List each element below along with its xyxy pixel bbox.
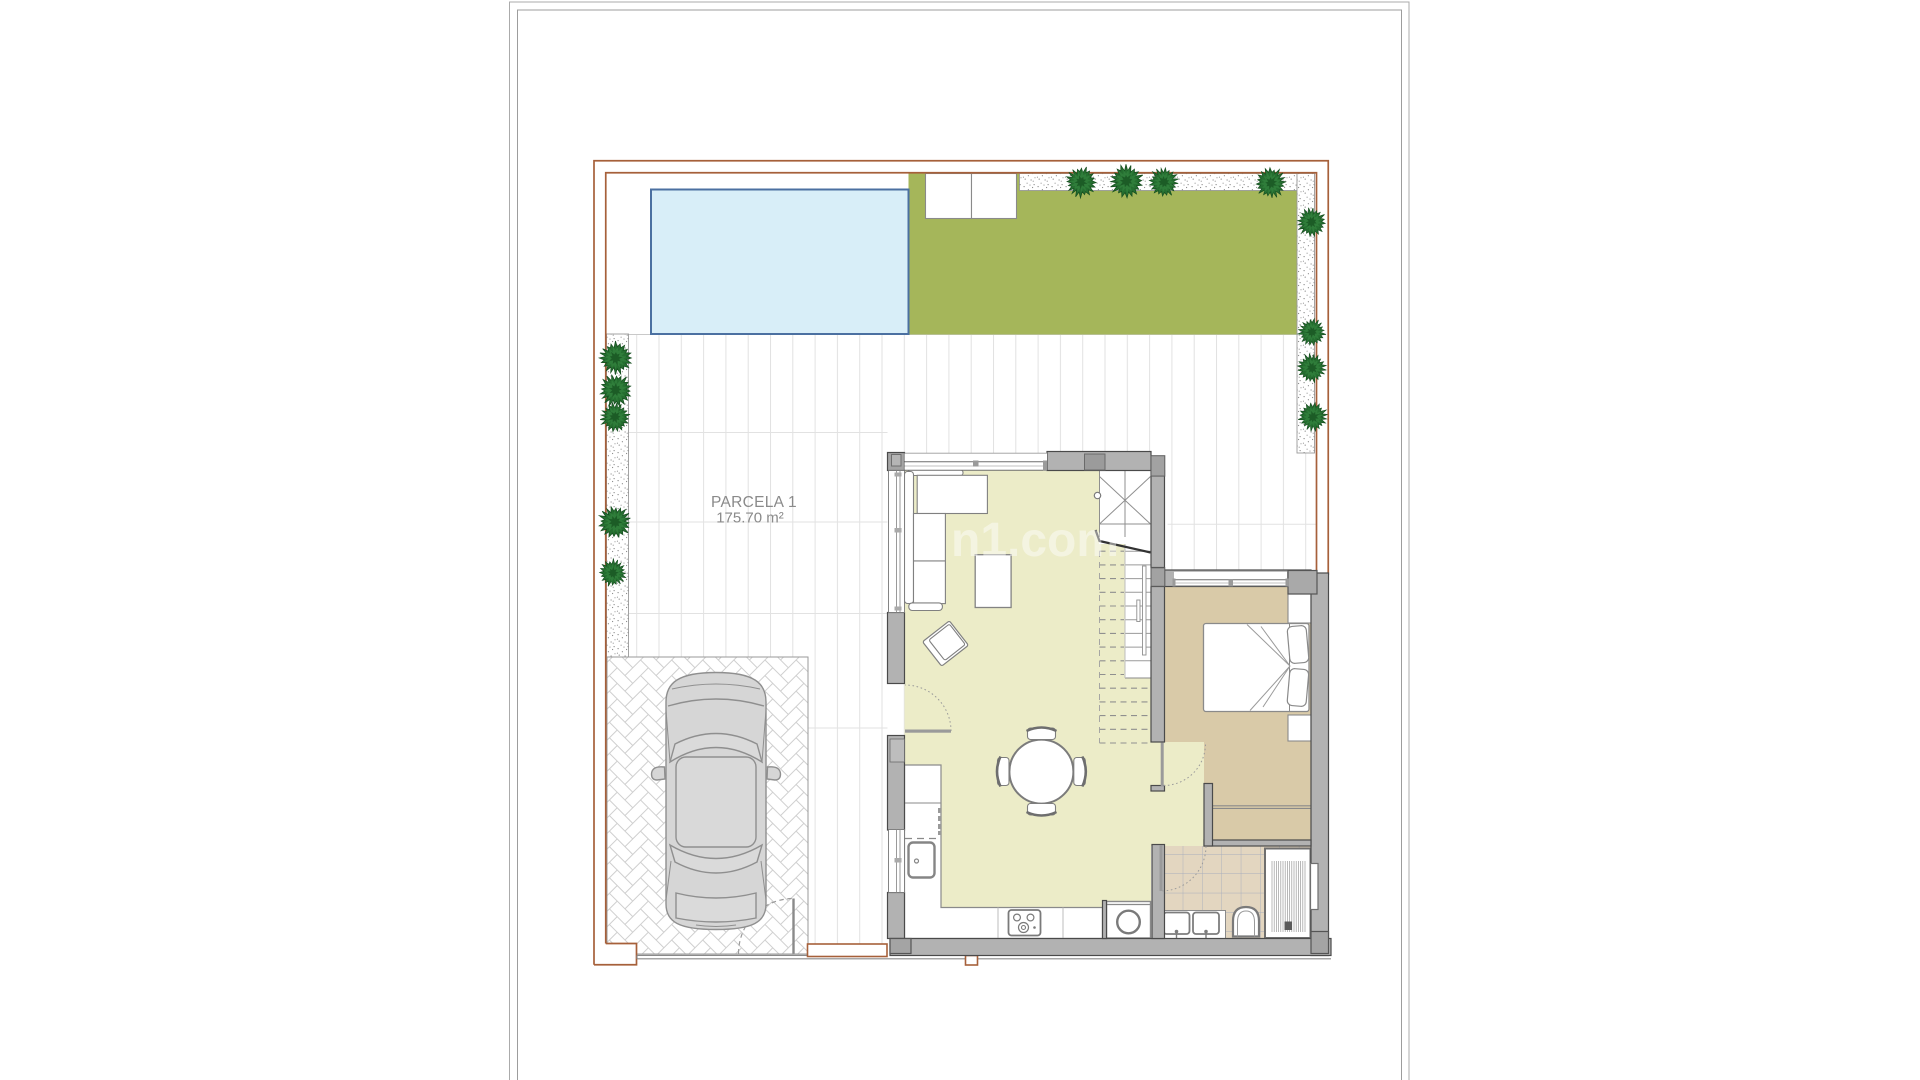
svg-text:175.70 m²: 175.70 m² (716, 510, 784, 527)
svg-text:n1.com: n1.com (951, 514, 1119, 567)
svg-text:PARCELA 1: PARCELA 1 (711, 494, 797, 511)
